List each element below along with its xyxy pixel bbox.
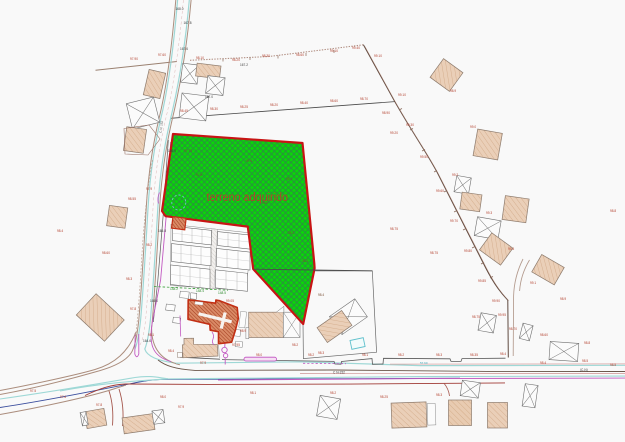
svg-text:98.75: 98.75 [472, 315, 480, 319]
svg-text:C N-152: C N-152 [333, 371, 345, 375]
svg-text:148.4: 148.4 [196, 289, 204, 293]
svg-text:97.90: 97.90 [130, 57, 138, 61]
svg-text:98.4: 98.4 [168, 349, 174, 353]
svg-text:99.30: 99.30 [406, 123, 414, 127]
svg-text:98.20: 98.20 [232, 58, 240, 62]
svg-text:97.8: 97.8 [96, 403, 102, 407]
svg-text:98.60: 98.60 [296, 53, 304, 57]
svg-text:terreno adquirido: terreno adquirido [207, 192, 289, 204]
svg-text:99.40: 99.40 [352, 46, 360, 50]
svg-text:97.8: 97.8 [196, 173, 202, 177]
svg-text:98.40: 98.40 [300, 101, 308, 105]
svg-text:98.25: 98.25 [240, 105, 248, 109]
svg-text:98.90: 98.90 [382, 111, 390, 115]
svg-text:98.60: 98.60 [102, 251, 110, 255]
svg-text:98.4: 98.4 [318, 293, 324, 297]
svg-text:99.2: 99.2 [452, 173, 458, 177]
svg-text:148.2: 148.2 [170, 287, 178, 291]
svg-text:98.4: 98.4 [540, 361, 546, 365]
svg-text:98.75: 98.75 [390, 227, 398, 231]
svg-text:97.9: 97.9 [200, 361, 206, 365]
svg-text:98.0: 98.0 [256, 353, 262, 357]
svg-text:97.5: 97.5 [30, 389, 36, 393]
svg-text:164.6: 164.6 [143, 339, 151, 343]
svg-text:98.70: 98.70 [360, 97, 368, 101]
svg-text:98.1: 98.1 [362, 353, 368, 357]
svg-text:98.1: 98.1 [250, 391, 256, 395]
svg-text:98.3: 98.3 [318, 351, 324, 355]
svg-text:57.60: 57.60 [420, 361, 428, 365]
svg-text:97.60: 97.60 [158, 53, 166, 57]
svg-text:98.3: 98.3 [436, 353, 442, 357]
svg-text:98.3: 98.3 [436, 393, 442, 397]
svg-text:98.9: 98.9 [240, 329, 246, 333]
svg-text:98.55: 98.55 [128, 197, 136, 201]
svg-text:99.3: 99.3 [486, 211, 492, 215]
svg-text:98.60: 98.60 [330, 99, 338, 103]
svg-text:167.0: 167.0 [205, 95, 213, 99]
svg-text:98.2: 98.2 [398, 353, 404, 357]
svg-text:98.70: 98.70 [509, 327, 517, 331]
svg-text:97.9: 97.9 [146, 187, 152, 191]
svg-text:98.35: 98.35 [470, 353, 478, 357]
svg-text:(C-N): (C-N) [580, 368, 588, 372]
svg-text:97.75: 97.75 [184, 149, 192, 153]
svg-text:98.2: 98.2 [292, 343, 298, 347]
svg-text:148.5: 148.5 [218, 291, 226, 295]
svg-text:97.9: 97.9 [178, 405, 184, 409]
svg-text:99.10: 99.10 [330, 49, 338, 53]
svg-text:98.1: 98.1 [286, 177, 292, 181]
svg-text:99.05: 99.05 [226, 299, 234, 303]
svg-text:97.6: 97.6 [60, 395, 66, 399]
svg-text:98.30: 98.30 [210, 107, 218, 111]
svg-text:99.1: 99.1 [530, 281, 536, 285]
svg-text:98.30: 98.30 [262, 54, 270, 58]
svg-text:99.0: 99.0 [470, 125, 476, 129]
svg-text:98.2: 98.2 [288, 231, 294, 235]
svg-text:97.9: 97.9 [246, 159, 252, 163]
svg-text:98.0: 98.0 [160, 395, 166, 399]
svg-text:165.8: 165.8 [158, 229, 166, 233]
svg-text:99.60: 99.60 [436, 189, 444, 193]
svg-text:98.4: 98.4 [57, 229, 63, 233]
svg-text:98.25: 98.25 [380, 395, 388, 399]
svg-text:99.70: 99.70 [450, 219, 458, 223]
svg-text:98.9: 98.9 [560, 297, 566, 301]
svg-text:98.1: 98.1 [148, 333, 154, 337]
svg-text:98.2: 98.2 [308, 353, 314, 357]
svg-text:165.0: 165.0 [150, 299, 158, 303]
svg-text:98.4: 98.4 [500, 352, 506, 356]
svg-text:98.2: 98.2 [146, 243, 152, 247]
svg-text:99.50: 99.50 [420, 155, 428, 159]
svg-text:98.8: 98.8 [610, 209, 616, 213]
svg-text:98.60: 98.60 [540, 333, 548, 337]
svg-text:98.45: 98.45 [180, 109, 188, 113]
svg-text:98.5: 98.5 [582, 359, 588, 363]
svg-text:167.2: 167.2 [240, 63, 248, 67]
svg-text:98.10: 98.10 [196, 56, 204, 60]
svg-text:98.75: 98.75 [430, 251, 438, 255]
svg-text:99.95: 99.95 [498, 313, 506, 317]
svg-text:97.95: 97.95 [232, 343, 240, 347]
svg-text:167.8: 167.8 [184, 21, 192, 25]
svg-text:98.0: 98.0 [262, 201, 268, 205]
svg-text:98.8: 98.8 [584, 341, 590, 345]
svg-text:98.3: 98.3 [302, 259, 308, 263]
svg-text:99.20: 99.20 [390, 131, 398, 135]
svg-text:98.20: 98.20 [270, 103, 278, 107]
svg-text:98.2: 98.2 [330, 391, 336, 395]
svg-text:98.5: 98.5 [610, 363, 616, 367]
svg-text:168.0: 168.0 [176, 7, 184, 11]
svg-text:99.4: 99.4 [508, 247, 514, 251]
svg-text:97.8: 97.8 [130, 307, 136, 311]
svg-text:99.85: 99.85 [478, 279, 486, 283]
svg-text:167.6: 167.6 [180, 47, 188, 51]
svg-text:98.3: 98.3 [126, 277, 132, 281]
svg-text:99.90: 99.90 [492, 299, 500, 303]
svg-text:99.10: 99.10 [398, 93, 406, 97]
svg-text:98.9: 98.9 [450, 89, 456, 93]
svg-text:99.80: 99.80 [464, 249, 472, 253]
svg-text:166.9: 166.9 [168, 149, 176, 153]
svg-text:99.10: 99.10 [374, 54, 382, 58]
